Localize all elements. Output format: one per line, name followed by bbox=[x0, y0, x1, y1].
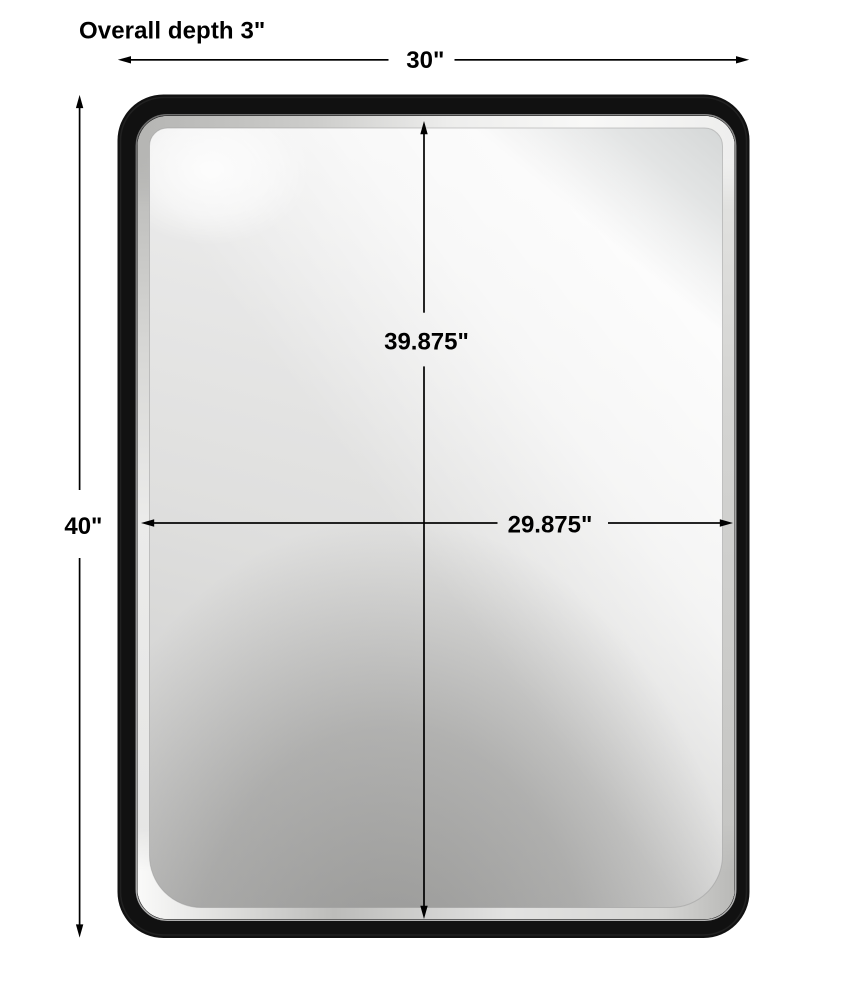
svg-text:30": 30" bbox=[406, 47, 444, 74]
svg-text:29.875": 29.875" bbox=[508, 512, 593, 539]
svg-text:40": 40" bbox=[64, 513, 102, 540]
svg-text:Overall depth 3": Overall depth 3" bbox=[79, 18, 265, 45]
svg-text:39.875": 39.875" bbox=[384, 328, 469, 355]
